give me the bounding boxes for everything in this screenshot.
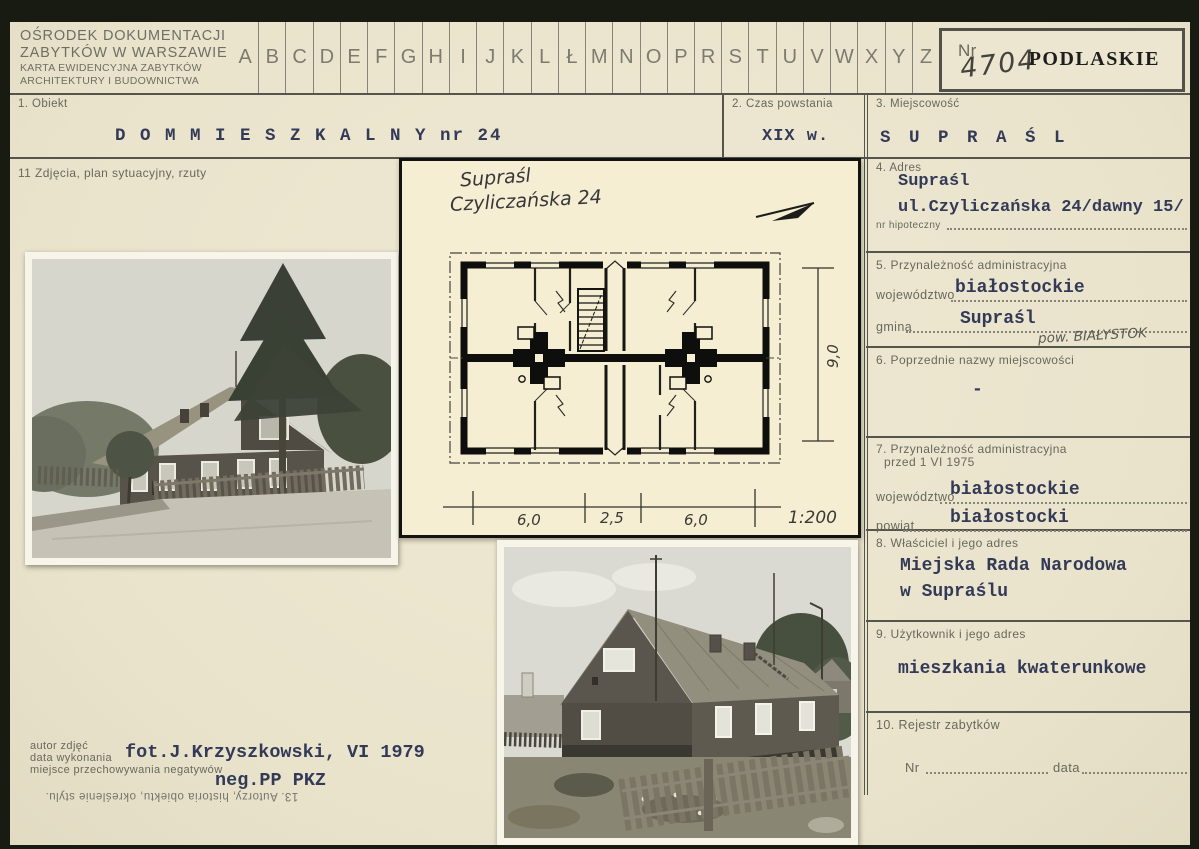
- s9-label: 9. Użytkownik i jego adres: [876, 627, 1026, 641]
- s2-left-border: [722, 93, 724, 158]
- s10-nr-line: [926, 772, 1048, 774]
- photo-street-view: [25, 252, 398, 565]
- s6-label: 6. Poprzednie nazwy miejscowości: [876, 353, 1074, 367]
- s10-date-label: data: [1053, 760, 1080, 775]
- alphabet-cell-R: R: [695, 22, 722, 93]
- dim-right: 6,0: [684, 511, 708, 529]
- alphabet-cell-N: N: [613, 22, 640, 93]
- s10-label: 10. Rejestr zabytków: [876, 718, 1000, 732]
- photo-rear-view: [497, 540, 858, 845]
- s7-powiat-line: [903, 530, 1187, 532]
- s8-owner-line1: Miejska Rada Narodowa: [900, 556, 1127, 576]
- s9-divider: [866, 711, 1190, 713]
- header-divider: [10, 93, 1190, 95]
- s2-date-value: XIX w.: [762, 127, 829, 146]
- alphabet-cell-U: U: [777, 22, 804, 93]
- s8-owner-line2: w Supraślu: [900, 582, 1008, 602]
- s9-user-value: mieszkania kwaterunkowe: [898, 659, 1146, 679]
- alphabet-cell-S: S: [722, 22, 749, 93]
- plan-height-dimension: 9,0: [798, 256, 852, 461]
- s7-label: 7. Przynależność administracyjna: [876, 442, 1067, 456]
- s10-nr-label: Nr: [905, 760, 920, 775]
- alphabet-cell-J: J: [477, 22, 504, 93]
- alphabet-cell-M: M: [586, 22, 613, 93]
- alphabet-cell-Ł: Ł: [559, 22, 586, 93]
- evidence-card: OŚRODEK DOKUMENTACJI ZABYTKÓW W WARSZAWI…: [10, 22, 1190, 845]
- alphabet-cell-O: O: [641, 22, 668, 93]
- alphabet-cell-Y: Y: [886, 22, 913, 93]
- alphabet-cell-L: L: [532, 22, 559, 93]
- alphabet-cell-V: V: [804, 22, 831, 93]
- alphabet-cell-B: B: [259, 22, 286, 93]
- alphabet-strip: ABCDEFGHIJKLŁMNOPRSTUVWXYZ: [232, 22, 939, 93]
- floor-plan-drawing: [430, 243, 810, 475]
- s7-voivodeship-line: [940, 502, 1187, 504]
- s5-divider: [866, 346, 1190, 348]
- org-line: OŚRODEK DOKUMENTACJI: [20, 28, 232, 45]
- s4-divider: [866, 251, 1190, 253]
- issuing-office-block: OŚRODEK DOKUMENTACJI ZABYTKÓW W WARSZAWI…: [20, 28, 232, 88]
- s8-divider: [866, 620, 1190, 622]
- negatives-value: neg.PP PKZ: [215, 770, 326, 791]
- s5-voivodeship-line: [951, 300, 1187, 302]
- s8-label: 8. Właściciel i jego adres: [876, 536, 1018, 550]
- alphabet-cell-D: D: [314, 22, 341, 93]
- s6-divider: [866, 436, 1190, 438]
- s4-sublabel: nr hipoteczny: [876, 220, 941, 231]
- alphabet-cell-Z: Z: [913, 22, 939, 93]
- s10-date-line: [1082, 772, 1187, 774]
- right-column-border: [864, 93, 868, 795]
- alphabet-cell-P: P: [668, 22, 695, 93]
- s5-handwritten-powiat: pow. BIAŁYSTOK: [1038, 325, 1148, 347]
- s7-powiat-value: białostocki: [950, 508, 1069, 528]
- alphabet-cell-T: T: [749, 22, 776, 93]
- s13-reversed-label: 13. Autorzy, historia obiektu, określeni…: [45, 790, 298, 802]
- negatives-label: miejsce przechowywania negatywów: [30, 764, 223, 776]
- s1-label: 1. Obiekt: [18, 98, 68, 110]
- s5-label: 5. Przynależność administracyjna: [876, 258, 1067, 272]
- alphabet-cell-C: C: [286, 22, 313, 93]
- s5-voivodeship-value: białostockie: [955, 278, 1085, 298]
- nr-hipoteczny-line: [947, 228, 1187, 230]
- plan-scale: 1:200: [788, 508, 837, 528]
- alphabet-cell-G: G: [395, 22, 422, 93]
- floor-plan-card: Supraśl Czyliczańska 24: [399, 158, 861, 538]
- north-arrow-icon: [754, 193, 818, 227]
- org-line: ARCHITEKTURY I BUDOWNICTWA: [20, 75, 232, 88]
- plan-bottom-dimensions: 6,0 2,5 6,0 1:200: [432, 487, 842, 533]
- alphabet-cell-F: F: [368, 22, 395, 93]
- org-line: ZABYTKÓW W WARSZAWIE: [20, 45, 232, 62]
- dim-mid: 2,5: [600, 509, 624, 527]
- alphabet-cell-A: A: [232, 22, 259, 93]
- author-label: autor zdjęć: [30, 740, 88, 752]
- s5-gmina-value: Supraśl: [960, 309, 1036, 329]
- s2-label: 2. Czas powstania: [732, 98, 833, 110]
- s7-voivodeship-value: białostockie: [950, 480, 1080, 500]
- s3-label: 3. Miejscowość: [876, 98, 960, 110]
- s4-street-line: ul.Czyliczańska 24/dawny 15/: [898, 198, 1184, 217]
- s3-town-value: S U P R A Ś L: [880, 128, 1069, 148]
- street-photo-illustration: [32, 259, 391, 558]
- s4-town-line: Supraśl: [898, 172, 969, 191]
- org-line: KARTA EWIDENCYJNA ZABYTKÓW: [20, 62, 232, 75]
- dim-left: 6,0: [517, 511, 541, 529]
- alphabet-cell-X: X: [858, 22, 885, 93]
- plan-handwritten-town: Supraśl: [459, 165, 531, 192]
- alphabet-cell-W: W: [831, 22, 858, 93]
- author-value: fot.J.Krzyszkowski, VI 1979: [125, 742, 425, 763]
- number-stamp-box: Nr 4704 PODLASKIE: [939, 28, 1185, 92]
- alphabet-cell-I: I: [450, 22, 477, 93]
- rear-photo-illustration: [504, 547, 851, 838]
- alphabet-cell-H: H: [423, 22, 450, 93]
- date-made-label: data wykonania: [30, 752, 112, 764]
- s7-label2: przed 1 VI 1975: [884, 455, 975, 469]
- scanned-heritage-card-page: { "colors": { "paper": "#ebe5cf", "inset…: [0, 0, 1199, 849]
- s11-label: 11 Zdjęcia, plan sytuacyjny, rzuty: [18, 166, 207, 180]
- voivodeship-stamp: PODLASKIE: [1029, 48, 1160, 71]
- alphabet-cell-K: K: [504, 22, 531, 93]
- alphabet-cell-E: E: [341, 22, 368, 93]
- s6-value: -: [972, 380, 983, 400]
- s1-object-value: D O M M I E S Z K A L N Y nr 24: [115, 126, 503, 146]
- s5-voivodeship-label: województwo: [876, 288, 955, 302]
- dim-height: 9,0: [824, 344, 842, 368]
